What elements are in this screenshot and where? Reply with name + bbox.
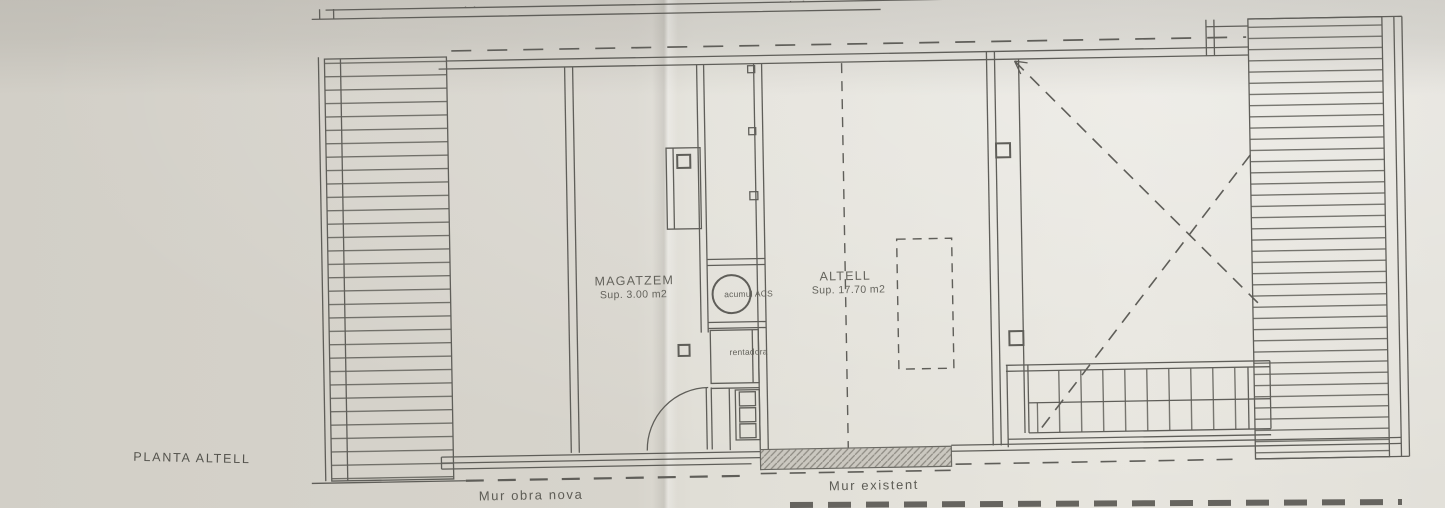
- room-area-altell: Sup. 17.70 m2: [812, 283, 886, 296]
- fixture-label-water-heater: acumul ACS: [724, 288, 773, 299]
- magatzem-left-wall: [565, 67, 580, 453]
- fixture-label-washer: rentadora: [729, 346, 767, 357]
- legend-new-wall: Mur obra nova: [479, 487, 584, 504]
- altell-right-wall: [986, 51, 1025, 445]
- altell-dashed-axis: [842, 63, 849, 448]
- adjacent-drawing-bottom-edge: [790, 502, 1402, 505]
- skylight-dashed-outline: [897, 238, 954, 369]
- staircase: [1006, 361, 1271, 448]
- door-swing: [646, 387, 712, 450]
- new-wall-dashed-line: [466, 476, 752, 481]
- column-magatzem: [678, 345, 689, 356]
- lower-shelf-unit: [729, 388, 760, 451]
- column-lower: [1009, 331, 1023, 345]
- storage-cabinet: [666, 148, 701, 230]
- existing-wall-hatch: [760, 446, 953, 473]
- top-facade-wall: [438, 47, 1248, 69]
- room-label-altell: ALTELL: [819, 269, 871, 284]
- left-pergola-band: [304, 55, 465, 484]
- adjacent-drawing-top-edge: [312, 0, 1001, 19]
- legend-existing-wall: Mur existent: [829, 477, 919, 494]
- room-area-magatzem: Sup. 3.00 m2: [600, 288, 667, 301]
- service-corridor-walls: [697, 64, 769, 451]
- floorplan-photo: MAGATZEM Sup. 3.00 m2 ALTELL Sup. 17.70 …: [0, 0, 1445, 508]
- room-label-magatzem: MAGATZEM: [594, 273, 674, 288]
- plan-title: PLANTA ALTELL: [133, 450, 251, 466]
- washer-box: [710, 330, 759, 389]
- column-upper: [996, 143, 1010, 157]
- floorplan-drawing: MAGATZEM Sup. 3.00 m2 ALTELL Sup. 17.70 …: [0, 0, 1445, 508]
- bottom-wall-new: [441, 452, 760, 482]
